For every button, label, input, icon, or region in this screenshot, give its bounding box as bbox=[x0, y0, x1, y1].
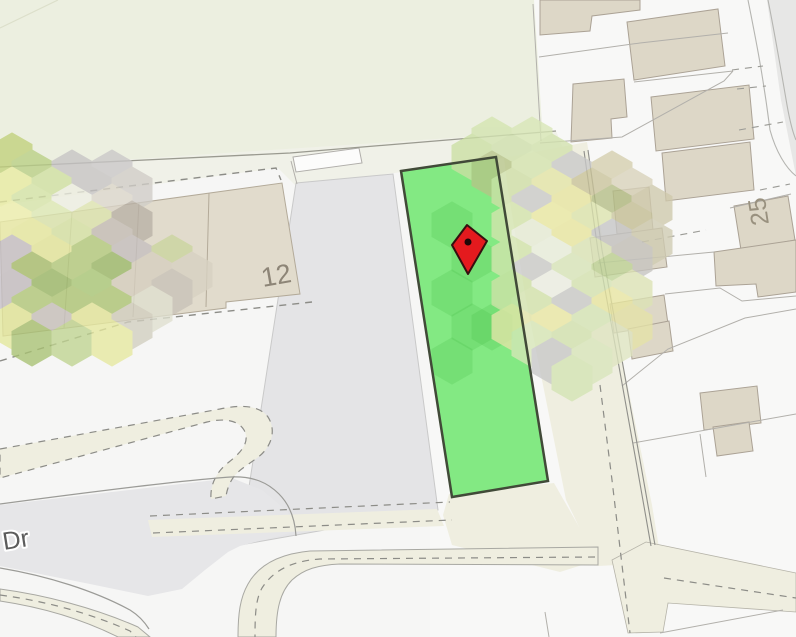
map-viewport[interactable]: 1225Dr bbox=[0, 0, 796, 637]
street-label-dr: Dr bbox=[1, 524, 31, 556]
building-l bbox=[713, 422, 753, 456]
building-k bbox=[700, 386, 761, 430]
map-canvas[interactable]: 1225Dr bbox=[0, 0, 796, 637]
marker-dot bbox=[465, 239, 472, 246]
house-number-25-label: 25 bbox=[743, 196, 775, 228]
building-e bbox=[662, 142, 754, 201]
road-area bbox=[0, 478, 294, 596]
house-number-12-label: 12 bbox=[259, 258, 294, 293]
building-d bbox=[651, 85, 754, 151]
